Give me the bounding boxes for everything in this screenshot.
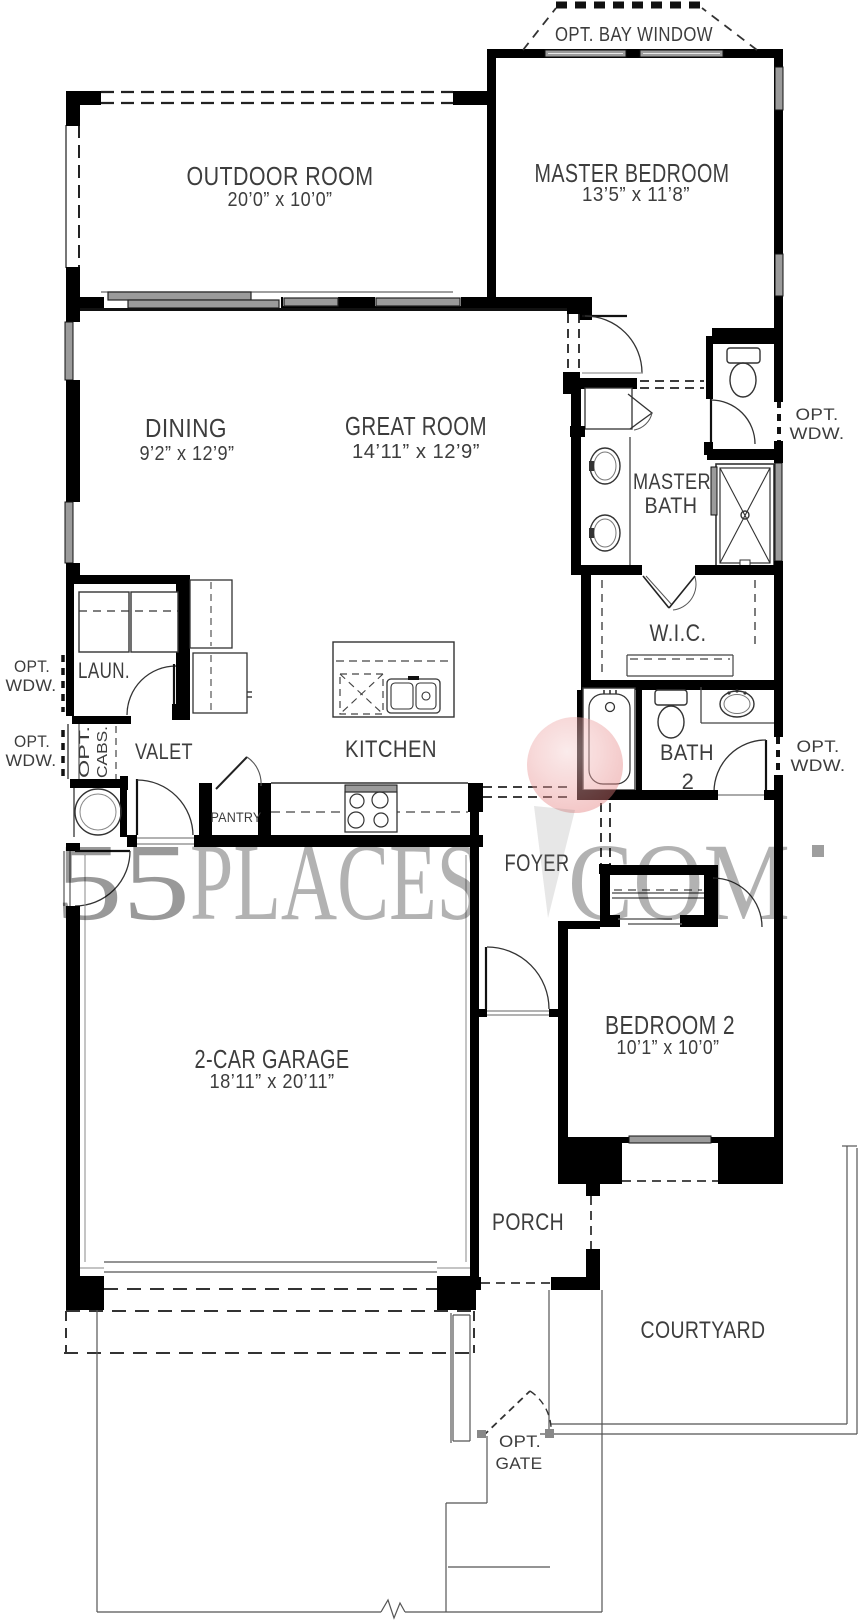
svg-text:KITCHEN: KITCHEN <box>345 736 437 763</box>
svg-text:20’0” x 10’0”: 20’0” x 10’0” <box>228 189 333 211</box>
svg-text:BEDROOM 2: BEDROOM 2 <box>605 1010 735 1040</box>
svg-text:DINING: DINING <box>145 413 227 443</box>
svg-text:W.I.C.: W.I.C. <box>650 620 707 647</box>
svg-text:GATE: GATE <box>496 1454 543 1473</box>
svg-text:OPT.: OPT. <box>796 405 839 424</box>
svg-text:GREAT ROOM: GREAT ROOM <box>345 411 487 441</box>
svg-text:WDW.: WDW. <box>791 756 846 775</box>
svg-text:VALET: VALET <box>135 739 193 764</box>
svg-text:14’11” x 12’9”: 14’11” x 12’9” <box>352 441 480 463</box>
svg-text:WDW.: WDW. <box>6 676 57 695</box>
svg-text:WDW.: WDW. <box>6 751 57 770</box>
svg-text:2-CAR GARAGE: 2-CAR GARAGE <box>195 1044 350 1074</box>
svg-text:OPT. BAY WINDOW: OPT. BAY WINDOW <box>555 24 713 46</box>
svg-text:MASTER: MASTER <box>633 469 711 494</box>
svg-text:OPT.: OPT. <box>499 1432 541 1451</box>
svg-text:13’5” x 11’8”: 13’5” x 11’8” <box>582 184 690 206</box>
svg-text:OPT.: OPT. <box>76 726 93 778</box>
svg-text:OUTDOOR ROOM: OUTDOOR ROOM <box>187 161 374 191</box>
svg-text:10’1” x 10’0”: 10’1” x 10’0” <box>617 1037 720 1059</box>
svg-text:COM: COM <box>568 821 790 943</box>
svg-text:55: 55 <box>55 821 190 943</box>
svg-text:18’11” x 20’11”: 18’11” x 20’11” <box>210 1071 335 1093</box>
svg-text:BATH: BATH <box>660 740 714 765</box>
svg-text:PORCH: PORCH <box>492 1209 564 1236</box>
svg-text:WDW.: WDW. <box>790 424 845 443</box>
svg-text:OPT.: OPT. <box>797 737 840 756</box>
svg-text:OPT.: OPT. <box>14 657 50 676</box>
svg-text:PLACES: PLACES <box>190 821 480 943</box>
svg-text:9’2” x 12’9”: 9’2” x 12’9” <box>140 443 235 465</box>
svg-text:CABS.: CABS. <box>94 726 111 778</box>
svg-text:COURTYARD: COURTYARD <box>641 1317 766 1344</box>
svg-text:OPT.: OPT. <box>14 732 50 751</box>
svg-text:LAUN.: LAUN. <box>78 658 130 683</box>
svg-text:BATH: BATH <box>645 493 698 518</box>
